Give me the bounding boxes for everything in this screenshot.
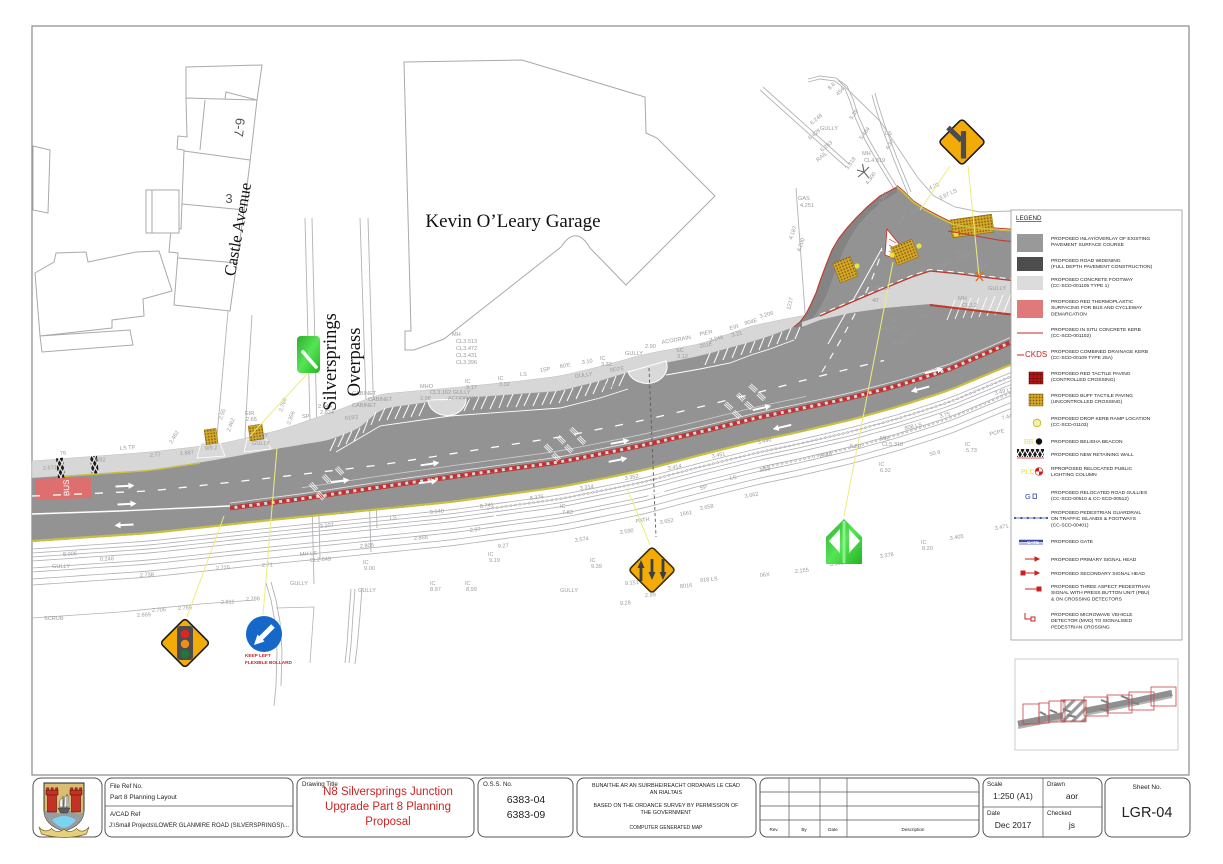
svg-text:2.65: 2.65 (246, 417, 257, 423)
svg-text:O.S.S. No.: O.S.S. No. (483, 781, 513, 788)
svg-text:06X: 06X (760, 572, 771, 579)
svg-text:9.27: 9.27 (498, 543, 509, 550)
svg-text:94: 94 (900, 306, 906, 312)
svg-text:2.706: 2.706 (152, 607, 166, 614)
svg-text:9/9.2: 9/9.2 (205, 445, 218, 452)
svg-text:(CC-SCD-00401): (CC-SCD-00401) (1051, 522, 1089, 528)
svg-text:BUNAITHE AR AN SUIRBHEIREACHT: BUNAITHE AR AN SUIRBHEIREACHT ORDANAIS L… (592, 783, 740, 789)
svg-text:PROPOSED GATE: PROPOSED GATE (1051, 539, 1094, 545)
svg-text:CL3.396: CL3.396 (456, 360, 477, 366)
svg-text:GULLY: GULLY (625, 351, 643, 357)
svg-text:LGR-04: LGR-04 (1122, 805, 1173, 821)
svg-text:ON TRAFFIC ISLANDS & FOOTWAYS: ON TRAFFIC ISLANDS & FOOTWAYS (1051, 516, 1137, 522)
svg-text:PROPOSED ROAD WIDENING: PROPOSED ROAD WIDENING (1051, 258, 1121, 264)
svg-text:PROPOSED RED THERMOPLASTIC: PROPOSED RED THERMOPLASTIC (1051, 299, 1134, 305)
svg-text:2.738: 2.738 (140, 572, 154, 579)
svg-text:CL3.513: CL3.513 (456, 339, 477, 345)
svg-text:BASED ON THE ORDANCE SURVEY BY: BASED ON THE ORDANCE SURVEY BY PERMISSIO… (594, 803, 740, 809)
svg-text:(UNCONTROLLED CROSSING): (UNCONTROLLED CROSSING) (1051, 399, 1123, 405)
svg-text:BUS: BUS (62, 479, 72, 496)
svg-text:POLE: POLE (600, 384, 615, 390)
svg-text:Part 8 Planning Layout: Part 8 Planning Layout (110, 794, 177, 801)
svg-text:GULLY: GULLY (988, 286, 1006, 292)
svg-text:KEEP LEFT: KEEP LEFT (245, 653, 271, 658)
svg-text:FLEXIBLE BOLLARD: FLEXIBLE BOLLARD (245, 660, 292, 665)
svg-text:Proposal: Proposal (365, 816, 410, 828)
svg-text:J:\Small Projects\LOWER GLANMI: J:\Small Projects\LOWER GLANMIRE ROAD (S… (109, 822, 289, 829)
svg-text:DETECTOR (MVD) TO SIGNALISED: DETECTOR (MVD) TO SIGNALISED (1051, 618, 1132, 624)
svg-text:SURFACING FOR BUS AND CYCLEWAY: SURFACING FOR BUS AND CYCLEWAY (1051, 305, 1143, 311)
svg-text:8.006: 8.006 (63, 551, 77, 558)
svg-text:ACODRAIN: ACODRAIN (448, 396, 478, 402)
svg-text:N8 Silversprings Junction: N8 Silversprings Junction (323, 786, 453, 798)
svg-text:(CONTROLLED CROSSING): (CONTROLLED CROSSING) (1051, 377, 1115, 383)
svg-text:3.17: 3.17 (466, 385, 477, 391)
svg-text:5.73: 5.73 (966, 448, 977, 454)
svg-text:PROPOSED THREE ASPECT PEDESTRI: PROPOSED THREE ASPECT PEDESTRIAN (1051, 584, 1150, 590)
svg-text:7.83: 7.83 (562, 510, 573, 516)
svg-text:aor: aor (1066, 791, 1078, 801)
svg-text:COMPUTER GENERATED MAP: COMPUTER GENERATED MAP (630, 825, 704, 831)
svg-text:4.251: 4.251 (800, 203, 814, 209)
svg-text:GULLY: GULLY (52, 564, 70, 570)
svg-text:Checked: Checked (1047, 810, 1072, 817)
svg-text:6383-09: 6383-09 (507, 809, 546, 821)
svg-text:2.97: 2.97 (470, 527, 481, 534)
svg-text:9.28: 9.28 (620, 600, 631, 607)
svg-text:6-7: 6-7 (231, 117, 248, 137)
svg-text:0.248: 0.248 (100, 556, 114, 563)
svg-text:Date: Date (828, 827, 838, 832)
svg-text:PROPOSED PEDESTRIAN GUARDRAIL: PROPOSED PEDESTRIAN GUARDRAIL (1051, 510, 1142, 516)
svg-text:GATE: GATE (1027, 540, 1039, 545)
svg-text:LIGHTING COLUMN: LIGHTING COLUMN (1051, 472, 1097, 478)
svg-text:Drawn: Drawn (1047, 781, 1065, 788)
svg-text:WL: WL (920, 314, 928, 320)
svg-text:PROPOSED IN SITU CONCRETE KERB: PROPOSED IN SITU CONCRETE KERB (1051, 327, 1141, 333)
svg-text:9.151: 9.151 (625, 580, 639, 587)
svg-text:GULLY: GULLY (820, 126, 838, 132)
svg-text:CKDS: CKDS (1025, 350, 1047, 359)
svg-text:GULLY: GULLY (250, 433, 268, 439)
svg-text:CL4.819: CL4.819 (864, 158, 885, 164)
svg-text:(CC-SCD-01103): (CC-SCD-01103) (1051, 422, 1089, 428)
svg-text:GULLY: GULLY (290, 581, 308, 587)
svg-text:6383-04: 6383-04 (507, 794, 546, 806)
svg-text:8.99: 8.99 (466, 587, 477, 593)
svg-text:PROPOSED COMBINED DRAINAGE KER: PROPOSED COMBINED DRAINAGE KERB (1051, 349, 1148, 355)
svg-text:PROPOSED CONCRETE FOOTWAY: PROPOSED CONCRETE FOOTWAY (1051, 277, 1134, 283)
svg-text:76: 76 (60, 451, 67, 457)
svg-text:Dec 2017: Dec 2017 (995, 820, 1032, 830)
svg-text:SP: SP (302, 414, 310, 420)
svg-text:GAS: GAS (798, 196, 810, 202)
svg-text:8016: 8016 (680, 583, 693, 590)
svg-text:LS: LS (520, 372, 527, 378)
svg-text:9.00: 9.00 (364, 566, 375, 572)
svg-text:SIGNAL WITH PRESS BUTTON UNIT: SIGNAL WITH PRESS BUTTON UNIT (PBU) (1051, 590, 1150, 596)
svg-text:A/CAD Ref: A/CAD Ref (110, 811, 141, 818)
svg-text:(CC-SCD-001102): (CC-SCD-001102) (1051, 333, 1091, 339)
svg-text:Sheet No.: Sheet No. (1133, 784, 1162, 791)
svg-text:1/92: 1/92 (95, 457, 106, 464)
svg-text:PLC: PLC (1021, 469, 1035, 476)
svg-text:LS: LS (390, 515, 398, 522)
svg-text:1:250 (A1): 1:250 (A1) (993, 791, 1033, 801)
svg-text:CL3.472: CL3.472 (456, 346, 477, 352)
svg-text:2.99: 2.99 (645, 592, 656, 599)
svg-text:(CC-SCD-001105 TYPE 1): (CC-SCD-001105 TYPE 1) (1051, 283, 1109, 289)
svg-text:PROPOSED MICROWAVE VEHICLE: PROPOSED MICROWAVE VEHICLE (1051, 612, 1133, 618)
svg-text:40': 40' (872, 298, 879, 304)
svg-text:PROPOSED PRIMARY SIGNAL HEAD: PROPOSED PRIMARY SIGNAL HEAD (1051, 557, 1137, 563)
svg-text:PROPOSED NEW RETAINING WALL: PROPOSED NEW RETAINING WALL (1051, 452, 1134, 458)
svg-text:GULLY: GULLY (358, 588, 376, 594)
svg-text:PROPOSED SECONDARY SIGNAL HEAD: PROPOSED SECONDARY SIGNAL HEAD (1051, 571, 1145, 577)
svg-text:CL5.318: CL5.318 (882, 442, 903, 448)
svg-text:8.20: 8.20 (922, 546, 933, 552)
svg-text:5.80: 5.80 (850, 444, 861, 450)
svg-text:2.669: 2.669 (137, 612, 151, 619)
svg-text:LS TP: LS TP (120, 445, 136, 452)
svg-text:PROPOSED DROP KERB RAMP LOCATI: PROPOSED DROP KERB RAMP LOCATION (1051, 416, 1151, 422)
svg-text:DEMARCATION: DEMARCATION (1051, 311, 1087, 317)
svg-text:2.805: 2.805 (360, 543, 374, 550)
svg-text:GULLY: GULLY (252, 441, 270, 447)
svg-text:(CC-SCD-00510 & CC-SCD-00512): (CC-SCD-00510 & CC-SCD-00512) (1051, 496, 1129, 502)
svg-text:2.90: 2.90 (645, 344, 656, 350)
svg-text:LS: LS (729, 475, 737, 482)
svg-text:Overpass: Overpass (345, 328, 365, 397)
svg-text:CL3.2: CL3.2 (962, 303, 977, 309)
svg-text:MH: MH (452, 332, 461, 338)
svg-text:By: By (801, 827, 807, 832)
svg-text:2.671: 2.671 (43, 465, 57, 472)
svg-text:CL3.431: CL3.431 (456, 353, 477, 359)
svg-text:Date: Date (987, 810, 1001, 817)
svg-text:9.19: 9.19 (489, 558, 500, 564)
svg-text:IC: IC (879, 462, 885, 468)
svg-text:CABINET: CABINET (352, 403, 377, 409)
svg-text:LS: LS (885, 131, 892, 137)
svg-text:Scale: Scale (987, 781, 1003, 788)
svg-text:Description: Description (902, 827, 925, 832)
svg-text:PAVEMENT SURFACE COURSE: PAVEMENT SURFACE COURSE (1051, 242, 1125, 248)
svg-text:3.12: 3.12 (677, 354, 688, 360)
svg-text:PROPOSED RELOCATED ROAD GULLIE: PROPOSED RELOCATED ROAD GULLIES (1051, 490, 1148, 496)
svg-text:GULLY: GULLY (560, 588, 578, 594)
svg-text:9.39: 9.39 (591, 564, 602, 570)
svg-text:RPROPOSED RELOCATED PUBLIC: RPROPOSED RELOCATED PUBLIC (1051, 466, 1133, 472)
svg-text:THE GOVERNMENT: THE GOVERNMENT (641, 810, 693, 816)
svg-text:BB: BB (1024, 439, 1034, 446)
svg-text:& ON CROSSING DETECTORS: & ON CROSSING DETECTORS (1051, 596, 1123, 602)
svg-text:PROPOSED INLAY/OVERLAY OF EXIS: PROPOSED INLAY/OVERLAY OF EXISTING (1051, 236, 1150, 242)
svg-text:3.32: 3.32 (499, 382, 510, 388)
svg-text:Upgrade Part 8 Planning: Upgrade Part 8 Planning (325, 801, 451, 813)
svg-text:MH: MH (862, 151, 871, 157)
svg-text:1.887: 1.887 (180, 450, 194, 457)
svg-text:Kevin O’Leary Garage: Kevin O’Leary Garage (425, 211, 600, 232)
svg-text:(FULL DEPTH PAVEMENT CONSTRUCT: (FULL DEPTH PAVEMENT CONSTRUCTION) (1051, 264, 1153, 270)
svg-text:IC: IC (921, 540, 927, 546)
svg-text:File Ref No.: File Ref No. (110, 783, 143, 790)
svg-text:2.866: 2.866 (414, 535, 428, 542)
svg-text:PROPOSED RED TACTILE PAVING: PROPOSED RED TACTILE PAVING (1051, 371, 1131, 377)
svg-text:2.98: 2.98 (420, 396, 431, 402)
svg-text:(CC-SCD-00109 TYPE 25A): (CC-SCD-00109 TYPE 25A) (1051, 355, 1113, 361)
svg-text:Silversprings: Silversprings (321, 313, 341, 411)
svg-text:GULLY: GULLY (880, 326, 898, 332)
svg-text:SP: SP (890, 318, 898, 324)
svg-text:PEDESTRIAN CROSSING: PEDESTRIAN CROSSING (1051, 624, 1110, 630)
svg-text:2.77: 2.77 (150, 452, 161, 459)
svg-text:6.92: 6.92 (880, 468, 891, 474)
svg-text:PROPOSED BUFF TACTILE PAVING: PROPOSED BUFF TACTILE PAVING (1051, 393, 1133, 399)
svg-text:PROPOSED BELISHA BEACON: PROPOSED BELISHA BEACON (1051, 439, 1123, 445)
svg-text:js: js (1068, 820, 1075, 830)
svg-text:2.725: 2.725 (216, 565, 230, 572)
svg-text:LEGEND: LEGEND (1016, 215, 1042, 222)
svg-text:MH: MH (958, 296, 967, 302)
svg-text:2.798: 2.798 (246, 596, 260, 603)
svg-text:3.32: 3.32 (601, 362, 612, 368)
svg-text:Rev.: Rev. (769, 827, 778, 832)
svg-text:AN RIALTAIS: AN RIALTAIS (650, 790, 683, 796)
svg-text:2.811: 2.811 (221, 599, 235, 606)
svg-text:8.97: 8.97 (430, 587, 441, 593)
svg-text:SCRUB: SCRUB (44, 616, 64, 622)
svg-text:G: G (1025, 492, 1031, 501)
